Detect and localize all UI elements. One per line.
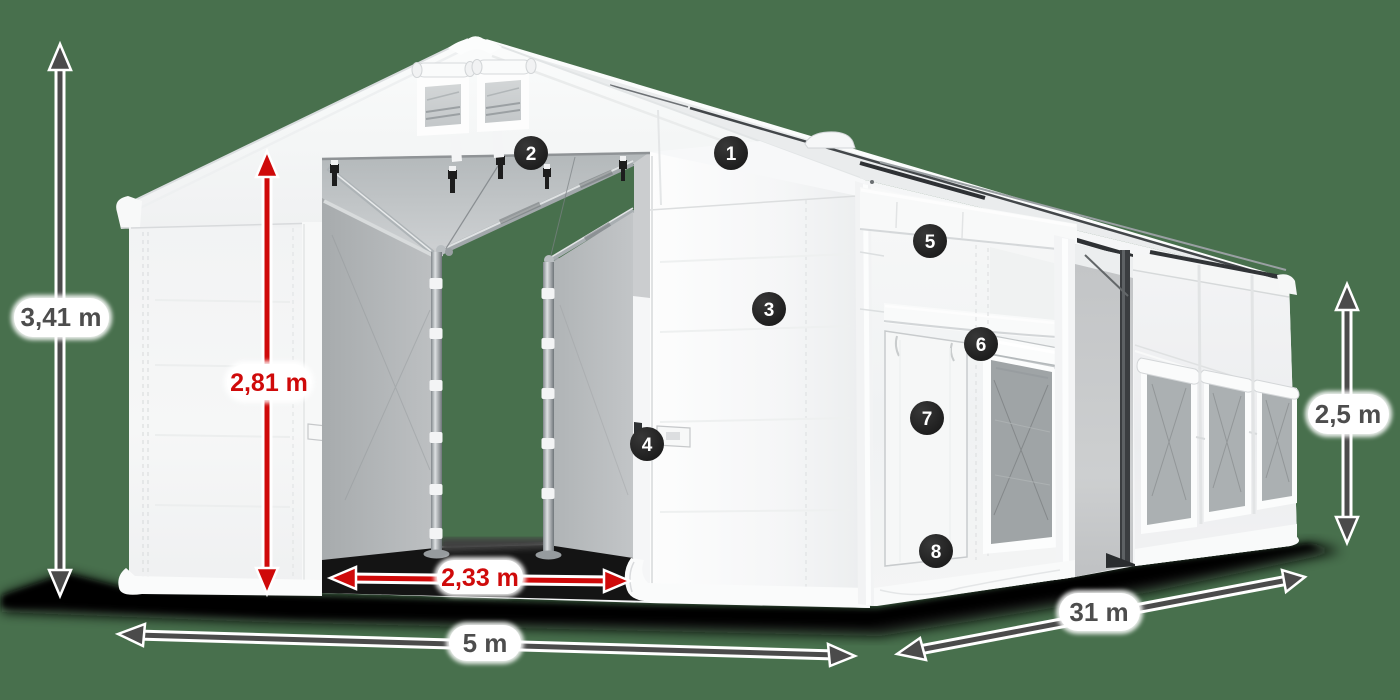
svg-text:31 m: 31 m (1069, 597, 1128, 627)
svg-text:2: 2 (526, 144, 537, 165)
svg-text:3,41 m: 3,41 m (21, 302, 102, 332)
svg-text:7: 7 (922, 409, 933, 430)
svg-text:5 m: 5 m (463, 628, 508, 658)
svg-text:4: 4 (642, 435, 653, 456)
svg-text:2,81 m: 2,81 m (230, 369, 308, 397)
svg-text:2,33 m: 2,33 m (441, 564, 519, 592)
svg-text:1: 1 (726, 144, 737, 165)
svg-text:2,5 m: 2,5 m (1315, 399, 1382, 429)
svg-text:8: 8 (931, 542, 942, 563)
svg-text:6: 6 (976, 335, 987, 356)
svg-text:3: 3 (764, 300, 775, 321)
svg-text:5: 5 (925, 232, 936, 253)
